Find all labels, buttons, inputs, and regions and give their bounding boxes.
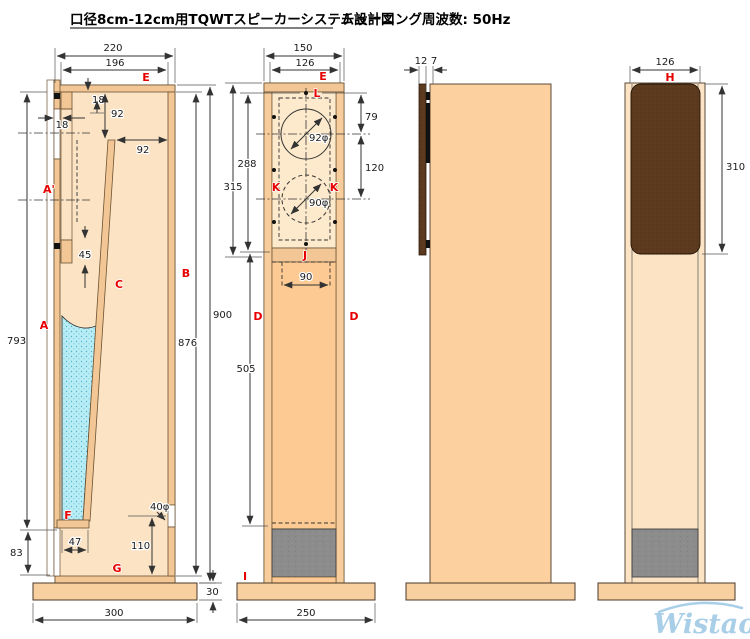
label-L: L [313,87,320,100]
dim-92-v: 92 [111,109,124,120]
side-view: 12 7 [404,56,575,600]
front-bottom-strip [272,577,336,583]
dim-220: 220 [103,43,122,54]
label-K-left: K [272,181,281,194]
label-I: I [243,570,247,583]
label-E-section: E [142,71,150,84]
tqwt-speaker-design-drawing: 口径8cm-12cm用TQWTスピーカーシステム設計図 チューニング周波数: 5… [0,0,750,639]
label-A-prime: A' [43,183,55,196]
side-base-plate [406,583,575,600]
dim-47: 47 [69,537,82,548]
dim-900: 900 [213,310,232,321]
mouth-opening-side [54,528,60,576]
dim-12: 12 [415,56,428,67]
label-G: G [112,562,121,575]
base-plate [33,583,197,600]
rear-wall-lower [168,527,175,576]
dim-90w: 90 [300,272,313,283]
watermark-text: Wistao [653,609,750,639]
driver-protrusion [426,103,430,163]
label-D-left: D [253,310,262,323]
dim-126-front: 126 [295,58,314,69]
grille-peg-top [54,93,60,99]
dim-45: 45 [79,250,92,261]
top-panel-E [55,85,175,92]
side-cabinet [430,84,551,583]
dim-18-side: 18 [56,120,69,131]
grille-spacer-bottom [426,240,430,248]
inner-strip-bottom [61,240,72,263]
dim-120: 120 [365,163,384,174]
bottom-panel-G [55,576,175,583]
grille-board-side [419,84,426,255]
dim-92-h: 92 [137,145,150,156]
front-lower-board [272,262,336,529]
dim-310: 310 [726,162,745,173]
dim-7: 7 [431,56,437,67]
label-A: A [40,319,49,332]
mouth-opening-front [272,529,336,577]
dim-126-back: 126 [655,57,674,68]
dim-300: 300 [104,608,123,619]
label-D-right: D [349,310,358,323]
front-right-wall [336,92,344,583]
dim-315: 315 [223,182,242,193]
label-J: J [302,249,307,262]
dim-150: 150 [293,43,312,54]
front-top-strip [264,83,344,92]
dim-793: 793 [7,336,26,347]
dim-196: 196 [105,58,124,69]
label-F: F [64,509,72,522]
rear-wall-upper [168,92,175,505]
dim-288: 288 [237,159,256,170]
front-wall-b [54,159,60,528]
back-base-plate [598,583,735,600]
grille-panel-H [631,84,700,254]
mouth-opening-grille-view [632,529,698,577]
dim-30: 30 [206,587,219,598]
dim-876: 876 [178,338,197,349]
dim-92phi: 92φ [309,133,329,144]
dim-90phi: 90φ [309,198,329,209]
label-H: H [665,71,674,84]
label-C: C [115,278,123,291]
front-view: 92φ 90φ 150 126 E L 315 288 79 120 K K J… [223,43,384,623]
dim-110: 110 [131,541,150,552]
inner-strip-top [61,92,72,109]
label-B: B [182,267,190,280]
grille-spacer-top [426,92,430,100]
dim-18-top: 18 [92,95,105,106]
grille-peg-bottom [54,243,60,249]
panel-F [57,520,89,528]
dim-79: 79 [365,112,378,123]
dim-250: 250 [296,608,315,619]
front-base-plate [237,583,375,600]
tuning-frequency-text: チューニング周波数: 50Hz [341,11,511,28]
label-E-front: E [319,70,327,83]
section-view: 220 196 E 18 18 92 92 45 793 876 900 40φ… [7,43,232,623]
wistao-watermark-logo: Wistao [653,603,750,639]
front-baffle [272,92,336,248]
label-K-right: K [330,181,339,194]
dim-40phi: 40φ [150,502,170,513]
drawing-header: 口径8cm-12cm用TQWTスピーカーシステム設計図 チューニング周波数: 5… [70,11,511,28]
dim-505: 505 [236,364,255,375]
front-left-wall [264,92,272,583]
front-driver-cutout [54,109,60,159]
grille-front-view: 126 H 310 [598,57,745,600]
dim-83: 83 [10,548,23,559]
